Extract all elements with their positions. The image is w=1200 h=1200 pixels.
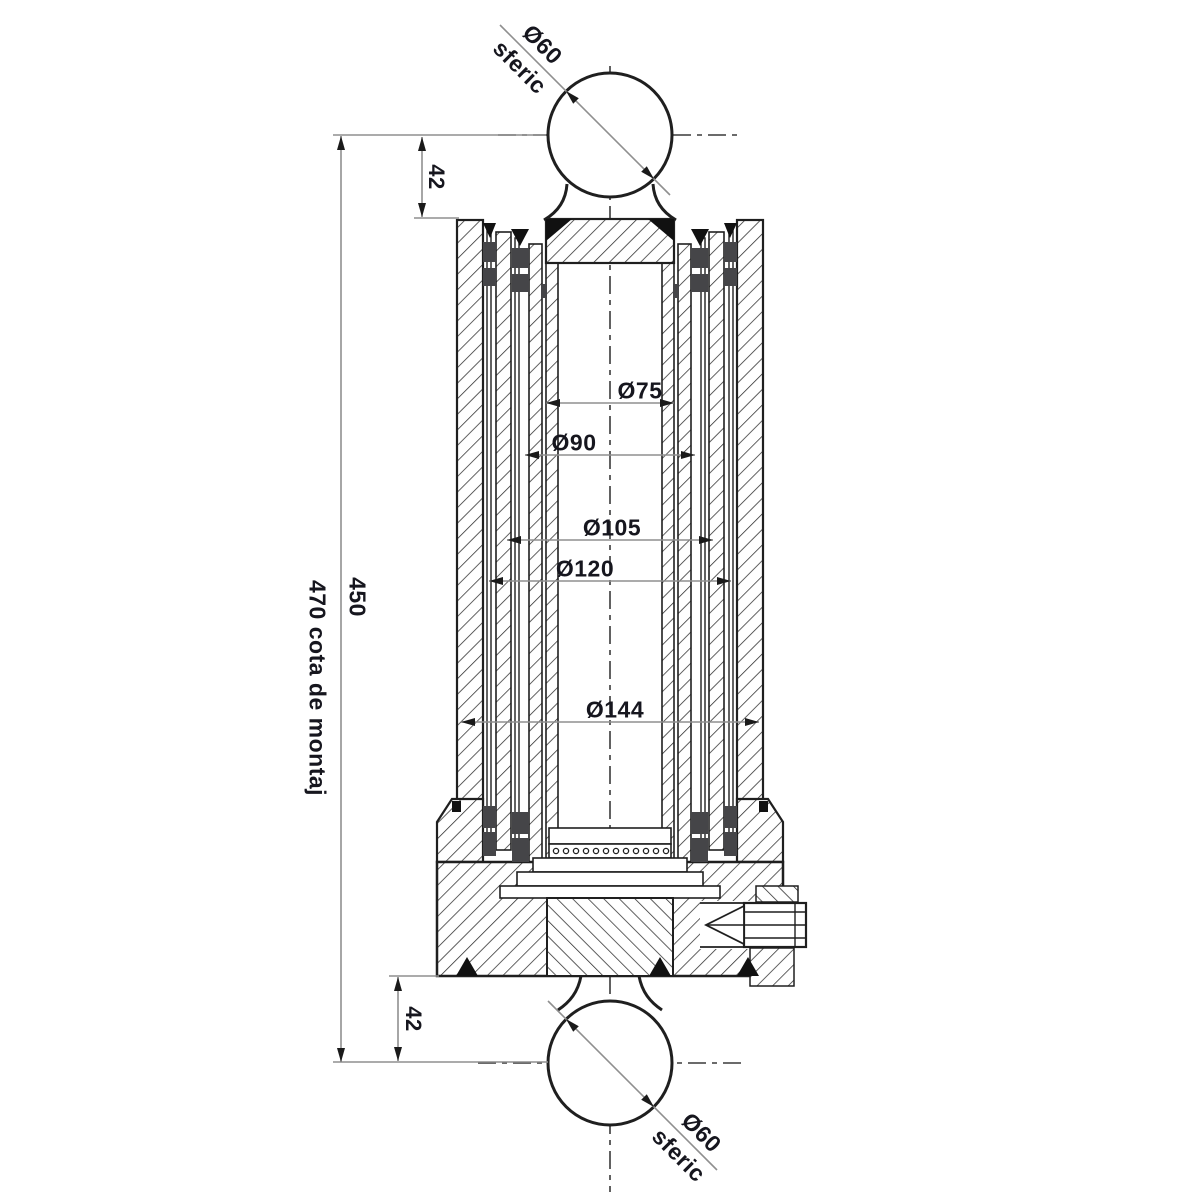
stage-diameter-label-120: Ø120 [556,558,614,581]
stage-diameter-label-90: Ø90 [552,432,597,455]
stage-diameter-label-144: Ø144 [586,699,644,722]
top-ball [544,73,676,220]
technical-drawing-canvas: Ø60 sferic Ø60 sferic 42 42 450 470 cota… [0,0,1200,1200]
bottom-offset-dimension-label: 42 [402,1006,424,1031]
top-offset-dimension-label: 42 [425,164,447,189]
stroke-length-dimension-label: 450 [346,577,369,617]
mounting-dimension-label: 470 cota de montaj [306,580,329,796]
bottom-center-plug [547,898,673,976]
stage-diameter-label-75: Ø75 [618,380,663,403]
cylinder-section-drawing [0,0,1200,1200]
bottom-ball [548,976,672,1125]
stage-diameter-label-105: Ø105 [583,517,641,540]
